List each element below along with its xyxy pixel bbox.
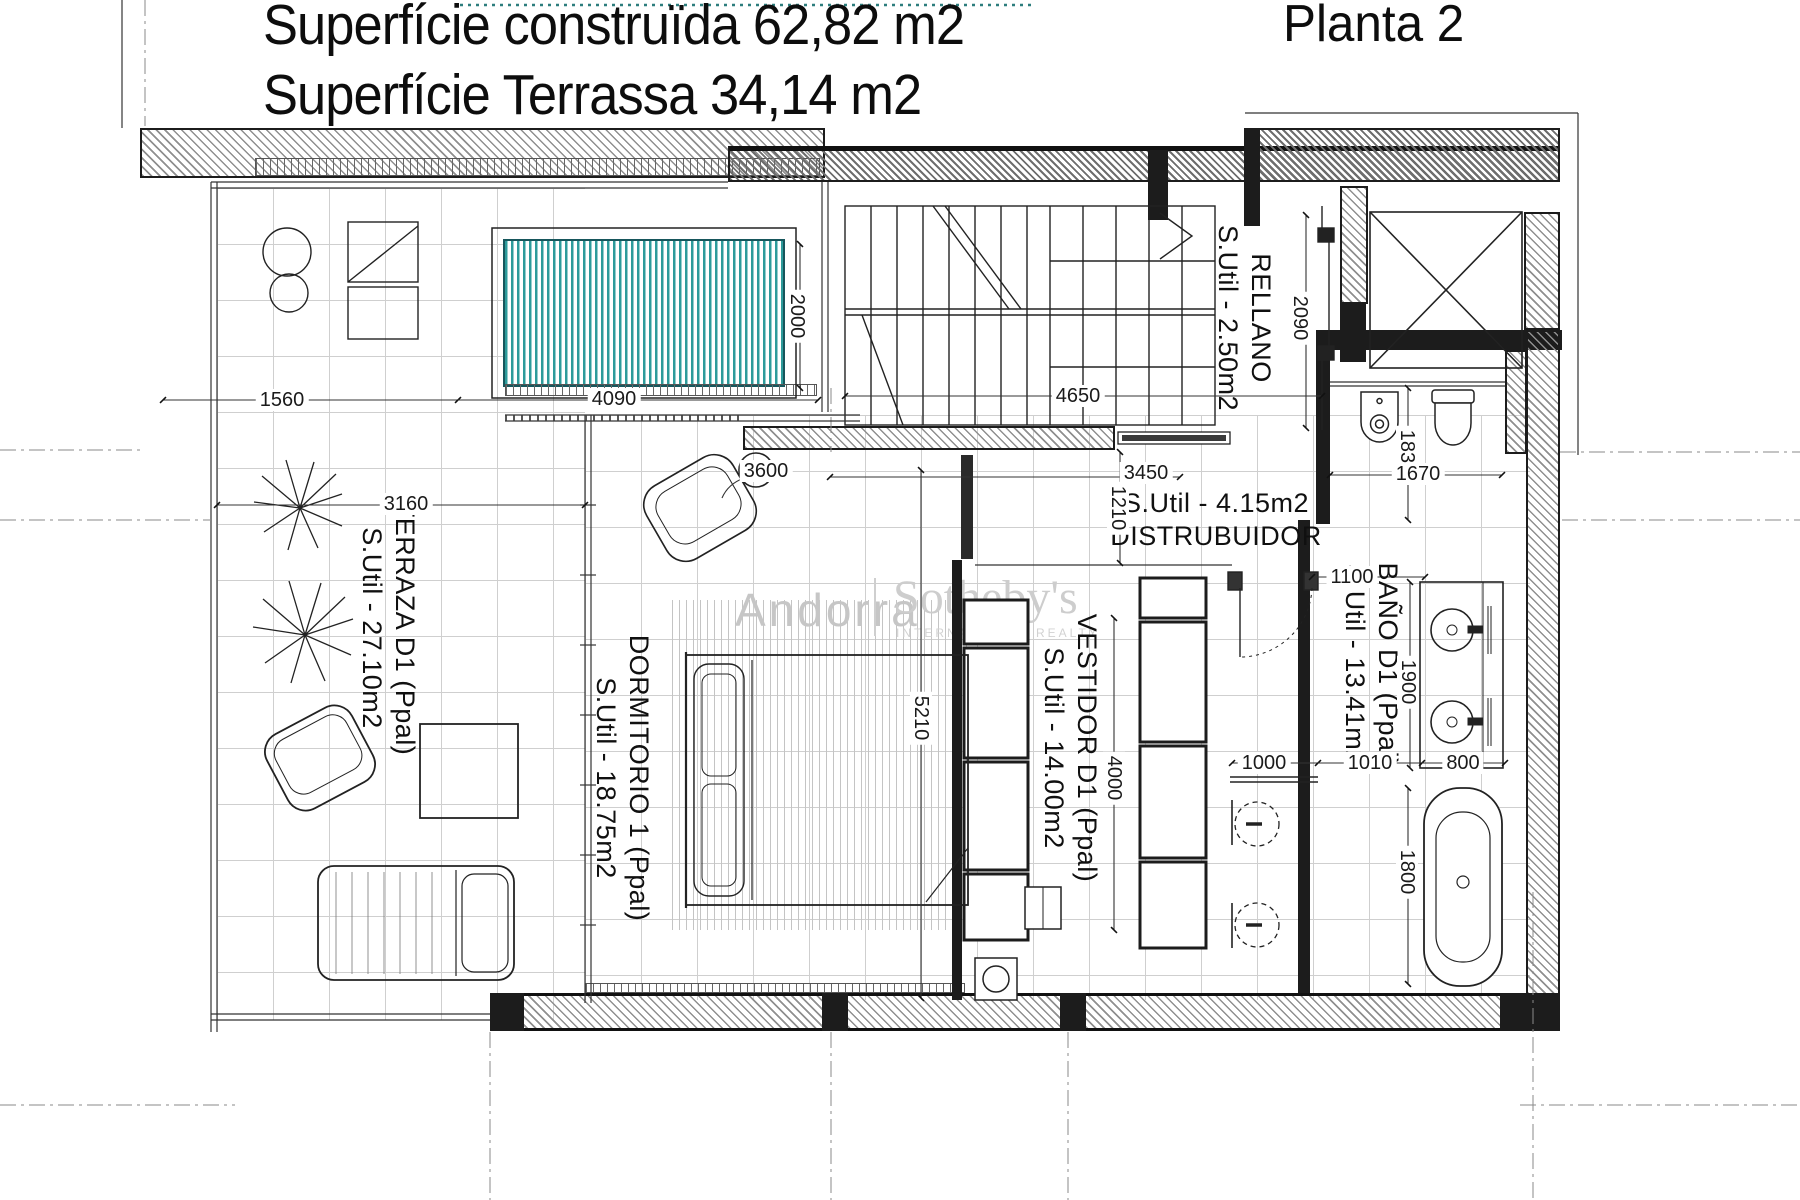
watermark-divider	[874, 578, 876, 636]
room-label-terraza: TERRAZA D1 (Ppal) S.Util - 27.10m2	[355, 501, 421, 756]
wall-top-right	[1245, 128, 1560, 182]
bedroom-rug	[672, 600, 967, 930]
dim-tub-length: 1800	[1396, 846, 1418, 899]
title-built-area: Superfície construïda 62,82 m2	[263, 0, 964, 58]
room-name: VESTIDOR D1 (Ppal)	[1070, 614, 1103, 883]
dim-pool-depth: 2000	[786, 290, 808, 343]
wall-rellano-lift	[1340, 186, 1368, 304]
wall-bottom-col-4	[1500, 993, 1560, 1031]
wall-bottom-col-2	[822, 993, 848, 1031]
pool-deck-strip	[505, 384, 817, 396]
pool	[503, 239, 785, 387]
dim-tub-width: 800	[1442, 752, 1483, 774]
stairs	[845, 206, 1215, 425]
room-name: RELLANO	[1244, 253, 1277, 383]
wall-bottom-col-3	[1060, 993, 1086, 1031]
dim-bath-walk-width: 1010	[1344, 752, 1397, 774]
floorplan-canvas: Andorra Sotheby's INTERNATIONAL REALTY	[0, 0, 1800, 1200]
room-area: S.Util - 4.15m2	[1123, 487, 1309, 520]
dim-terrace-width: 3160	[380, 493, 433, 515]
dim-shower-width: 1000	[1238, 752, 1291, 774]
dim-distribuidor-depth: 1210	[1107, 482, 1129, 535]
dim-pool-width: 4090	[588, 388, 641, 410]
dim-dorm-door-width: 3600	[740, 460, 793, 482]
wall-aseo-right	[1505, 350, 1527, 454]
wall-bottom	[490, 993, 1560, 1031]
dim-rellano-depth: 2090	[1289, 292, 1311, 345]
dim-stair-hall-width: 4650	[1052, 385, 1105, 407]
dim-dorm-length: 5210	[910, 692, 932, 745]
room-area: S.Util - 14.00m2	[1037, 647, 1070, 849]
dim-aseo-width: 1670	[1392, 463, 1445, 485]
wall-bottom-col-1	[490, 993, 524, 1031]
room-label-bano: BAÑO D1 (Ppal) S.Util - 13.41m2	[1338, 562, 1404, 767]
room-label-vestidor: VESTIDOR D1 (Ppal) S.Util - 14.00m2	[1037, 614, 1103, 883]
dim-vestidor-door: 1100	[1326, 566, 1377, 588]
wall-exterior-right	[1526, 330, 1560, 1030]
wall-lift-right	[1524, 212, 1560, 330]
title-terrace-area: Superfície Terrassa 34,14 m2	[263, 62, 921, 128]
room-area: S.Util - 18.75m2	[589, 677, 622, 879]
room-name: DISTRUBUIDOR	[1110, 520, 1322, 553]
room-label-rellano: RELLANO S.Util - 2.50m2	[1211, 225, 1277, 411]
watermark-brand-left: Andorra	[735, 583, 920, 637]
dorm-sill-strip	[585, 983, 965, 993]
wall-interior-mid	[743, 426, 1115, 450]
wall-stub-stairs	[1148, 150, 1168, 220]
room-label-dormitorio: DORMITORIO 1 (Ppal) S.Util - 18.75m2	[589, 635, 655, 922]
dim-distribuidor-width: 3450	[1120, 462, 1173, 484]
dim-terrace-edge: 1560	[256, 389, 309, 411]
room-name: TERRAZA D1 (Ppal)	[388, 501, 421, 756]
room-name: DORMITORIO 1 (Ppal)	[622, 635, 655, 922]
room-area: S.Util - 13.41m2	[1338, 564, 1371, 766]
wall-stub-rellano	[1244, 128, 1260, 226]
dim-vanity-length: 1900	[1397, 656, 1419, 709]
room-area: S.Util - 27.10m2	[355, 527, 388, 729]
dim-vestidor-length: 4000	[1103, 752, 1125, 805]
room-label-distribuidor: S.Util - 4.15m2 DISTRUBUIDOR	[1110, 487, 1322, 553]
plan-level-label: Planta 2	[1283, 0, 1464, 54]
room-area: S.Util - 2.50m2	[1211, 225, 1244, 411]
